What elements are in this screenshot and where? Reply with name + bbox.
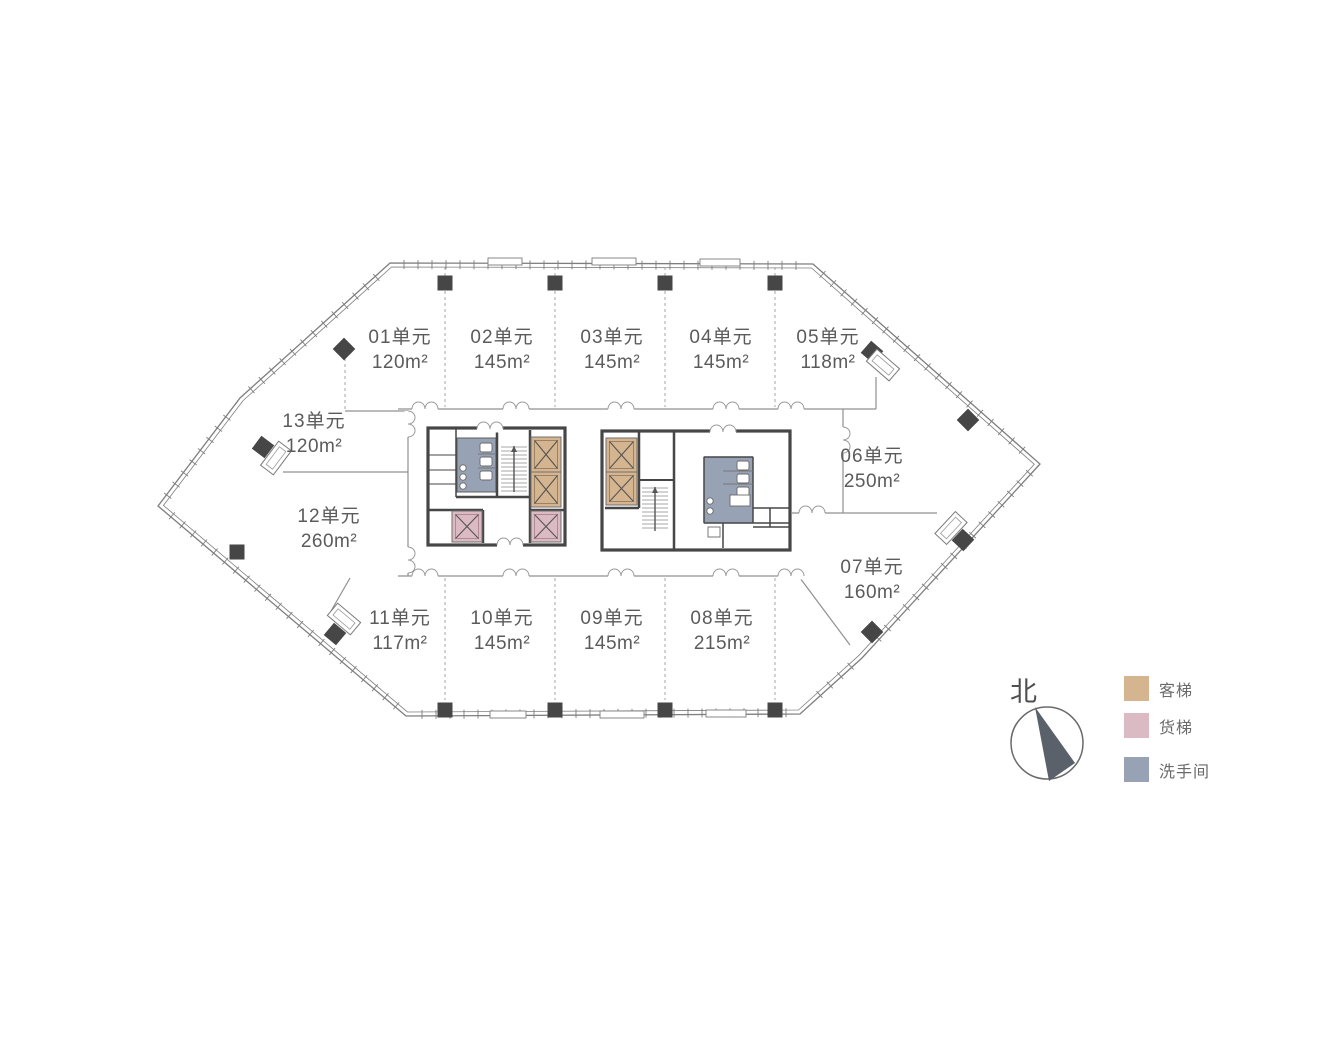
door-opening bbox=[412, 569, 438, 579]
compass-north-label: 北 bbox=[1010, 670, 1038, 709]
door-opening bbox=[405, 411, 416, 437]
column bbox=[230, 545, 245, 560]
unit-label-01: 01单元 120m² bbox=[368, 325, 431, 375]
door-opening bbox=[503, 402, 529, 413]
door-opening bbox=[778, 402, 804, 413]
toilet-fixture bbox=[480, 443, 492, 452]
unit-name: 03单元 bbox=[580, 325, 643, 350]
north-compass bbox=[1011, 707, 1083, 781]
door-opening bbox=[497, 538, 523, 549]
unit-area: 215m² bbox=[690, 631, 753, 656]
door-opening bbox=[405, 547, 416, 573]
unit-name: 09单元 bbox=[580, 606, 643, 631]
staircase bbox=[642, 487, 668, 531]
counter-fixture bbox=[730, 495, 750, 506]
unit-area: 120m² bbox=[368, 350, 431, 375]
legend-label: 货梯 bbox=[1159, 714, 1193, 738]
unit-label-10: 10单元 145m² bbox=[470, 606, 533, 656]
column bbox=[548, 703, 563, 718]
legend-item-freight-elevator: 货梯 bbox=[1124, 713, 1193, 738]
door-opening bbox=[713, 402, 739, 413]
door-opening bbox=[799, 506, 825, 516]
service-cores bbox=[428, 428, 790, 550]
unit-label-05: 05单元 118m² bbox=[796, 325, 859, 375]
restroom-swatch bbox=[1124, 757, 1149, 782]
unit-name: 02单元 bbox=[470, 325, 533, 350]
passenger-elevator bbox=[531, 437, 561, 472]
freight-elevator-swatch bbox=[1124, 713, 1149, 738]
unit-area: 145m² bbox=[580, 631, 643, 656]
toilet-fixture bbox=[737, 461, 749, 470]
unit-label-08: 08单元 215m² bbox=[690, 606, 753, 656]
unit-area: 117m² bbox=[369, 631, 431, 656]
counter-fixture bbox=[708, 527, 720, 537]
unit-name: 11单元 bbox=[369, 606, 431, 631]
unit-label-13: 13单元 120m² bbox=[282, 409, 345, 459]
unit-name: 12单元 bbox=[297, 504, 360, 529]
unit-area: 145m² bbox=[470, 631, 533, 656]
toilet-fixture bbox=[737, 474, 749, 483]
unit-area: 145m² bbox=[470, 350, 533, 375]
unit-name: 10单元 bbox=[470, 606, 533, 631]
door-opening bbox=[412, 402, 438, 413]
passenger-elevator bbox=[531, 472, 561, 507]
unit-area: 160m² bbox=[840, 580, 903, 605]
unit-area: 260m² bbox=[297, 529, 360, 554]
passenger-elevator bbox=[606, 472, 637, 505]
column bbox=[438, 276, 453, 291]
unit-name: 06单元 bbox=[840, 444, 903, 469]
staircase bbox=[501, 446, 527, 492]
diamond-column bbox=[333, 338, 356, 361]
door-opening bbox=[477, 422, 503, 432]
column bbox=[548, 276, 563, 291]
unit-area: 120m² bbox=[282, 434, 345, 459]
passenger-elevator bbox=[606, 438, 637, 472]
freight-elevator bbox=[531, 511, 561, 542]
floor-plan-page: 01单元 120m² 02单元 145m² 03单元 145m² 04单元 14… bbox=[0, 0, 1323, 1058]
unit-name: 08单元 bbox=[690, 606, 753, 631]
door-opening bbox=[608, 402, 634, 413]
floor-plan-drawing bbox=[0, 0, 1323, 1058]
door-opening bbox=[713, 569, 739, 579]
door-opening bbox=[503, 569, 529, 579]
column bbox=[658, 276, 673, 291]
unit-name: 04单元 bbox=[689, 325, 752, 350]
sink-fixture bbox=[460, 483, 466, 489]
unit-label-04: 04单元 145m² bbox=[689, 325, 752, 375]
door-opening bbox=[608, 569, 634, 579]
diamond-column bbox=[957, 409, 980, 432]
unit-label-12: 12单元 260m² bbox=[297, 504, 360, 554]
toilet-fixture bbox=[480, 457, 492, 466]
unit-area: 145m² bbox=[580, 350, 643, 375]
column bbox=[768, 703, 783, 718]
interior-walls bbox=[283, 377, 937, 645]
unit-name: 01单元 bbox=[368, 325, 431, 350]
unit-label-11: 11单元 117m² bbox=[369, 606, 431, 656]
unit-label-09: 09单元 145m² bbox=[580, 606, 643, 656]
door-opening bbox=[710, 425, 736, 436]
freight-elevator bbox=[452, 511, 482, 542]
passenger-elevator-swatch bbox=[1124, 676, 1149, 701]
unit-label-06: 06单元 250m² bbox=[840, 444, 903, 494]
sink-fixture bbox=[707, 498, 713, 504]
unit-area: 118m² bbox=[796, 350, 859, 375]
legend-label: 客梯 bbox=[1159, 677, 1193, 701]
sink-fixture bbox=[707, 508, 713, 514]
unit-name: 05单元 bbox=[796, 325, 859, 350]
sink-fixture bbox=[460, 474, 466, 480]
unit-name: 13单元 bbox=[282, 409, 345, 434]
unit-label-03: 03单元 145m² bbox=[580, 325, 643, 375]
toilet-fixture bbox=[480, 471, 492, 480]
legend-label: 洗手间 bbox=[1159, 758, 1210, 782]
unit-label-02: 02单元 145m² bbox=[470, 325, 533, 375]
column bbox=[658, 703, 673, 718]
unit-label-07: 07单元 160m² bbox=[840, 555, 903, 605]
sink-fixture bbox=[460, 465, 466, 471]
column bbox=[438, 703, 453, 718]
column bbox=[768, 276, 783, 291]
unit-name: 07单元 bbox=[840, 555, 903, 580]
legend-item-passenger-elevator: 客梯 bbox=[1124, 676, 1193, 701]
unit-area: 250m² bbox=[840, 469, 903, 494]
legend-item-restroom: 洗手间 bbox=[1124, 757, 1210, 782]
door-opening bbox=[778, 569, 804, 579]
unit-area: 145m² bbox=[689, 350, 752, 375]
